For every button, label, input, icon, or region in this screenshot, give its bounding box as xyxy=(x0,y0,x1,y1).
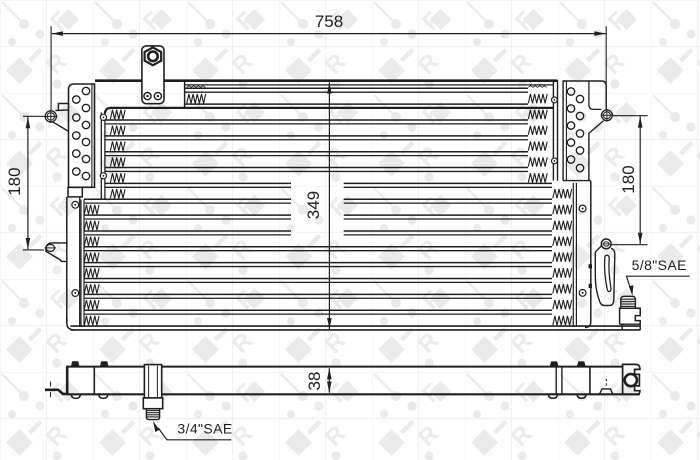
svg-text:180: 180 xyxy=(5,167,24,195)
svg-text:180: 180 xyxy=(619,165,638,193)
svg-text:3/4"SAE: 3/4"SAE xyxy=(177,421,232,437)
svg-text:349: 349 xyxy=(304,191,323,219)
svg-text:5/8"SAE: 5/8"SAE xyxy=(632,257,687,273)
svg-text:38: 38 xyxy=(305,372,324,391)
svg-text:758: 758 xyxy=(315,12,343,31)
